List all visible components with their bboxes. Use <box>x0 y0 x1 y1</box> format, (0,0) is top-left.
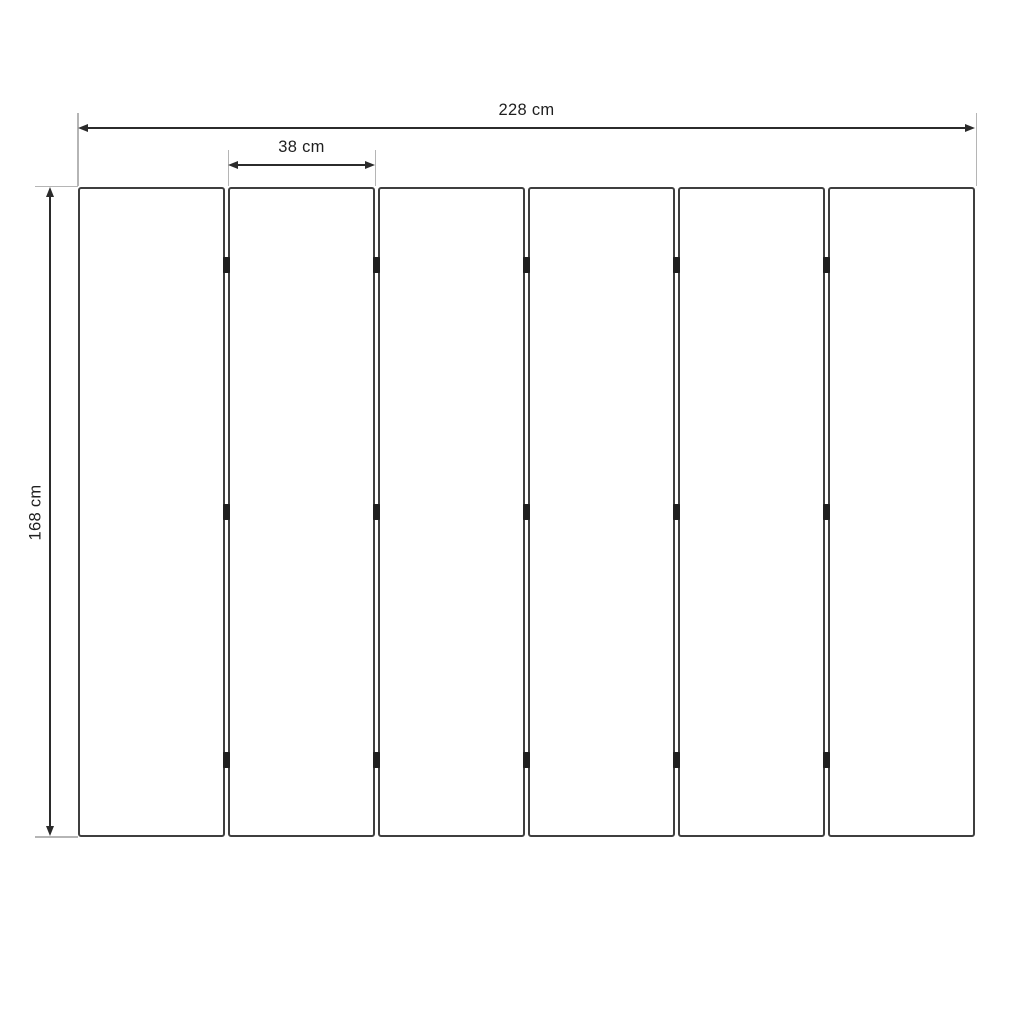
arrowhead-right-icon <box>365 161 375 169</box>
hinge-mark <box>373 257 380 273</box>
hinge-mark <box>223 257 230 273</box>
panel-4 <box>528 187 675 837</box>
hinge-mark <box>673 504 680 520</box>
panel-1 <box>78 187 225 837</box>
hinge-mark <box>523 504 530 520</box>
arrowhead-up-icon <box>46 187 54 197</box>
panel-6 <box>828 187 975 837</box>
hinge-mark <box>673 752 680 768</box>
hinge-mark <box>523 752 530 768</box>
total-width-dimension-line <box>85 127 968 129</box>
extension-line-height-top <box>35 186 78 188</box>
arrowhead-left-icon <box>228 161 238 169</box>
hinge-mark <box>223 504 230 520</box>
panel-5 <box>678 187 825 837</box>
panel-width-label: 38 cm <box>228 138 375 157</box>
drawing-canvas: 228 cm 38 cm 168 cm <box>0 0 1024 1024</box>
height-dimension-line <box>49 194 51 829</box>
total-width-label: 228 cm <box>78 101 975 120</box>
hinge-mark <box>373 504 380 520</box>
arrowhead-right-icon <box>965 124 975 132</box>
height-label: 168 cm <box>27 465 46 561</box>
panel-2 <box>228 187 375 837</box>
hinge-mark <box>823 257 830 273</box>
hinge-mark <box>223 752 230 768</box>
hinge-mark <box>823 752 830 768</box>
hinge-mark <box>673 257 680 273</box>
hinge-mark <box>523 257 530 273</box>
hinge-mark <box>373 752 380 768</box>
hinge-mark <box>823 504 830 520</box>
panel-width-dimension-line <box>235 164 368 166</box>
arrowhead-down-icon <box>46 826 54 836</box>
arrowhead-left-icon <box>78 124 88 132</box>
panel-3 <box>378 187 525 837</box>
extension-line-height-bottom <box>35 836 78 838</box>
extension-line-total-right <box>976 113 978 186</box>
